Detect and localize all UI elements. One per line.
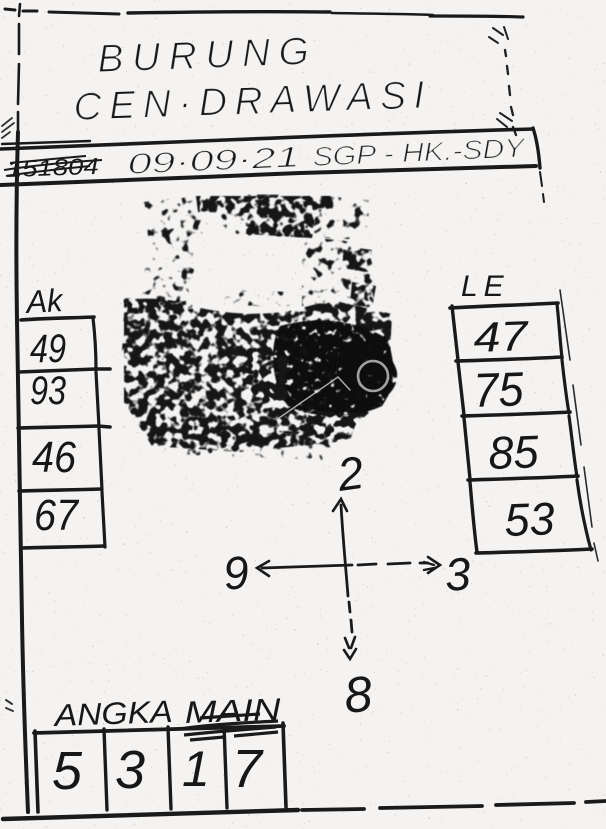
svg-text:9: 9 [221, 546, 252, 600]
svg-text:7: 7 [232, 739, 264, 799]
svg-text:47: 47 [473, 312, 531, 361]
svg-text:ANGKA: ANGKA [52, 694, 173, 733]
svg-text:49: 49 [30, 327, 66, 371]
svg-text:93: 93 [30, 369, 66, 413]
svg-text:BURUNG: BURUNG [97, 30, 319, 81]
svg-text:67: 67 [34, 491, 79, 540]
svg-text:3: 3 [115, 740, 145, 800]
svg-text:53: 53 [504, 492, 556, 546]
svg-text:5: 5 [52, 741, 83, 801]
svg-text:1: 1 [182, 741, 210, 797]
svg-text:46: 46 [32, 433, 76, 482]
svg-text:LE: LE [461, 270, 510, 303]
svg-text:3: 3 [443, 547, 473, 601]
svg-text:85: 85 [488, 425, 540, 479]
svg-text:75: 75 [473, 363, 525, 418]
svg-text:Ak: Ak [24, 282, 66, 320]
